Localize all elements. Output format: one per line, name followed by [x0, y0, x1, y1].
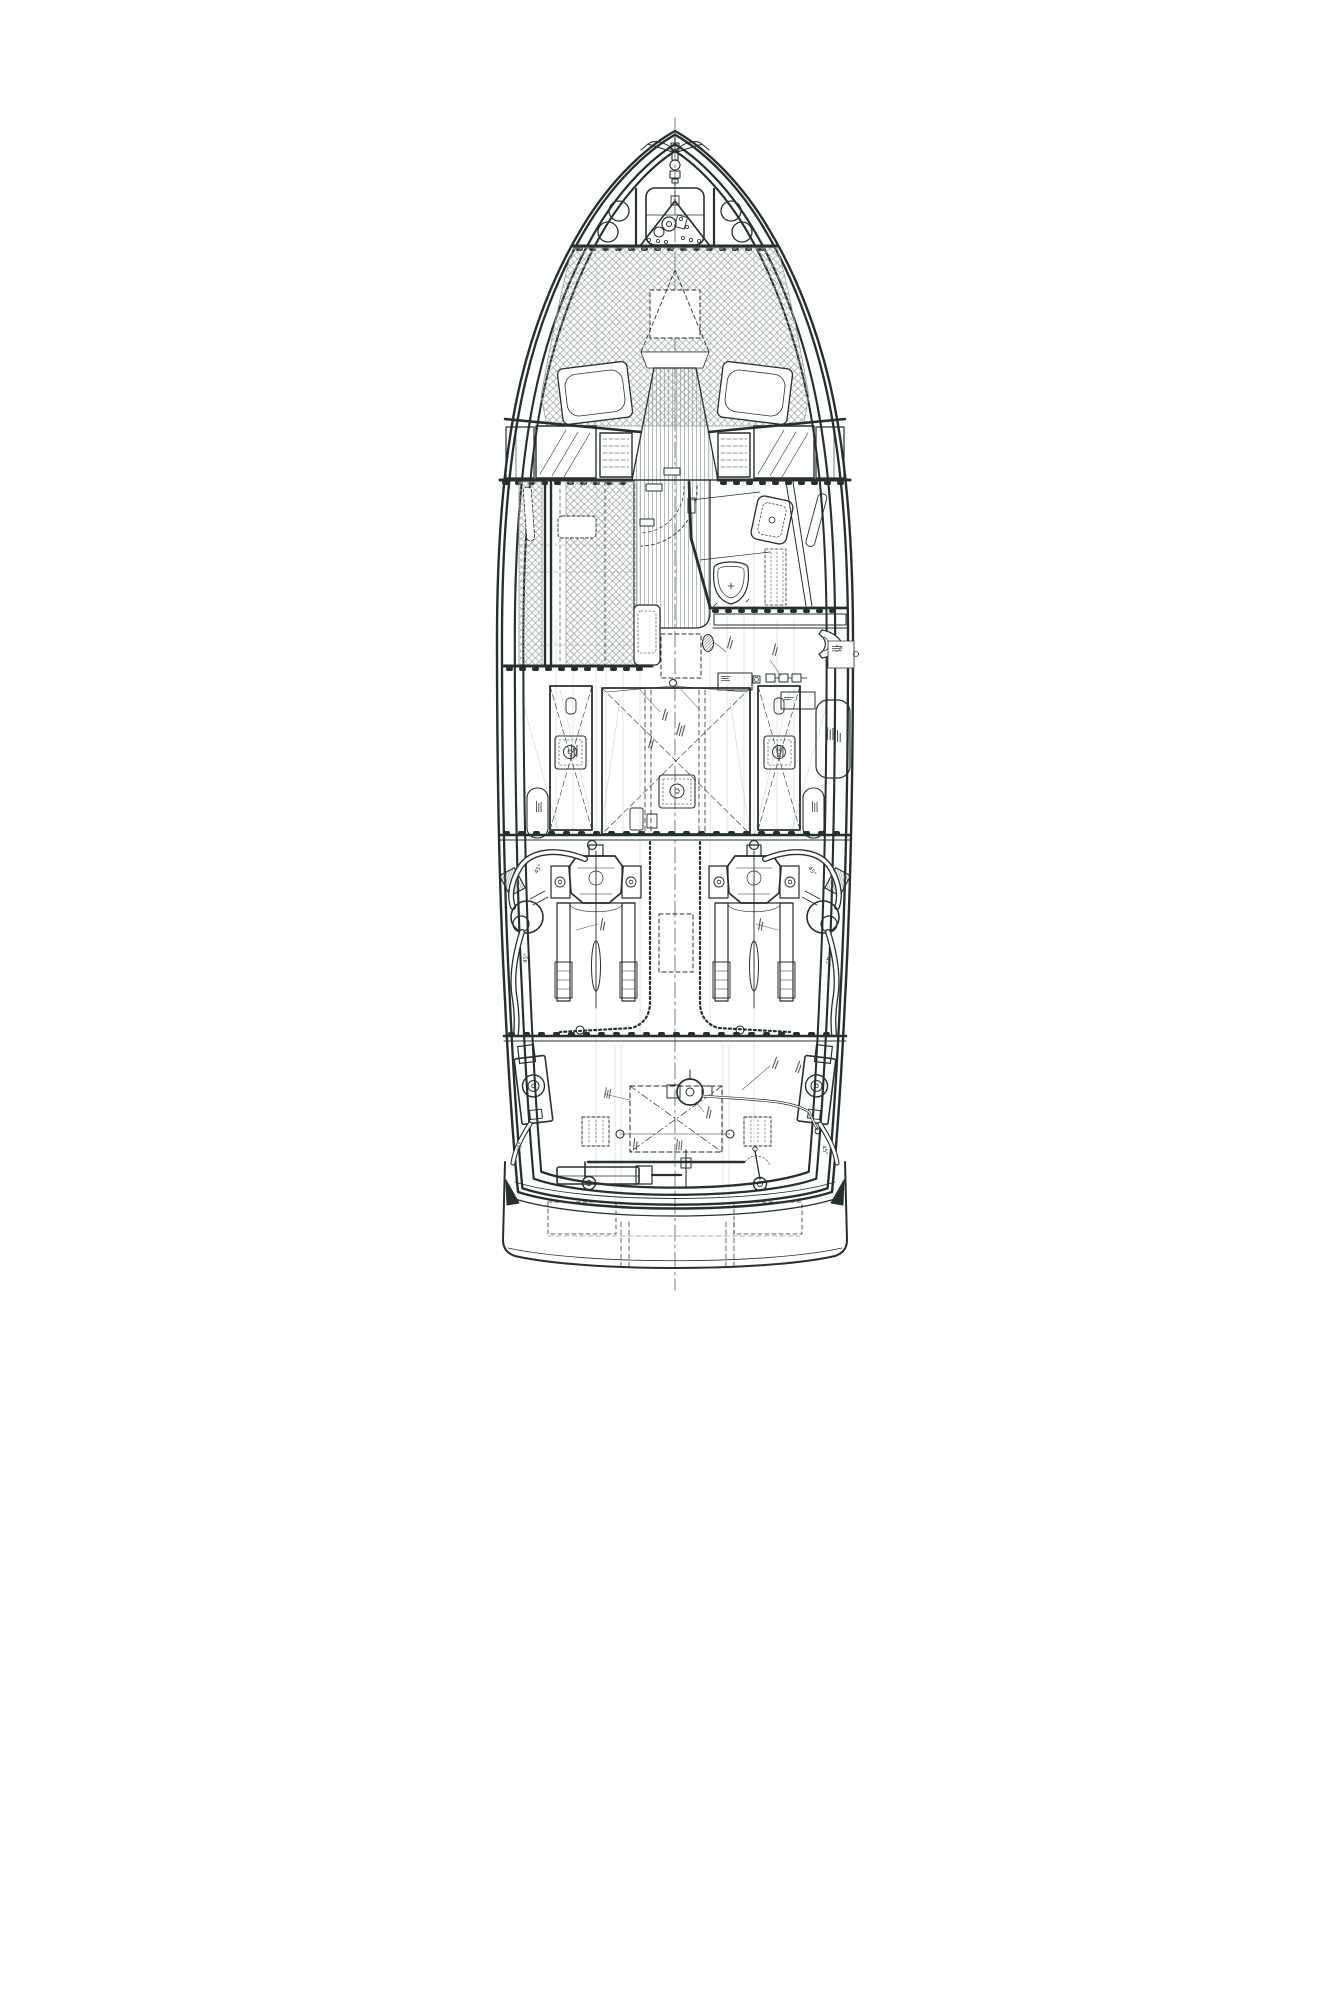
- angle-label: 45°: [824, 957, 831, 967]
- windlass: [654, 196, 687, 237]
- water-tank-starboard: [758, 686, 800, 830]
- lazarette-boxes: [582, 1117, 771, 1146]
- angle-label: 45°: [806, 866, 817, 878]
- angle-label: 45°: [820, 1145, 828, 1156]
- steering-helm-fitting: [667, 1070, 712, 1105]
- engine-port: [499, 845, 641, 1034]
- battery-bank: [766, 674, 807, 682]
- yacht-technical-drawing: 45° 45° 45° 45° 45° 45°: [0, 0, 1333, 2000]
- windlass-bolts: [647, 217, 700, 243]
- water-tank-port: [550, 686, 592, 830]
- engine-room-hatch: [659, 914, 693, 972]
- salon-port-side: [504, 481, 652, 669]
- annotation-callouts: [536, 636, 842, 1150]
- foredeck-access-hatch: [650, 290, 700, 338]
- toilet: [714, 562, 749, 606]
- deckhouse-side-wall: [545, 481, 551, 666]
- vent-hatch-port: [600, 433, 632, 477]
- side-window-port: [536, 426, 596, 478]
- deck-light-fitting: [703, 635, 714, 652]
- angle-label: 45°: [534, 864, 545, 876]
- angle-label: 45°: [523, 953, 530, 963]
- vent-hatch-starboard: [718, 433, 750, 477]
- side-window-starboard: [754, 426, 814, 478]
- angle-label: 45°: [516, 1141, 524, 1152]
- engine-hatch-outline: [560, 842, 650, 1032]
- shower-tray: [750, 495, 794, 546]
- engine-starboard: [709, 845, 851, 1034]
- salon-sunbed-inboard: [566, 482, 637, 666]
- galley-unit: [634, 605, 660, 665]
- exhaust-outlet-starboard: [797, 1043, 837, 1163]
- angle-labels: 45° 45° 45° 45° 45° 45°: [516, 864, 831, 1157]
- drawing-sheet: 45° 45° 45° 45° 45° 45°: [0, 0, 1333, 2000]
- fuel-tank-center: [602, 688, 750, 834]
- tie-bar: [703, 1096, 821, 1134]
